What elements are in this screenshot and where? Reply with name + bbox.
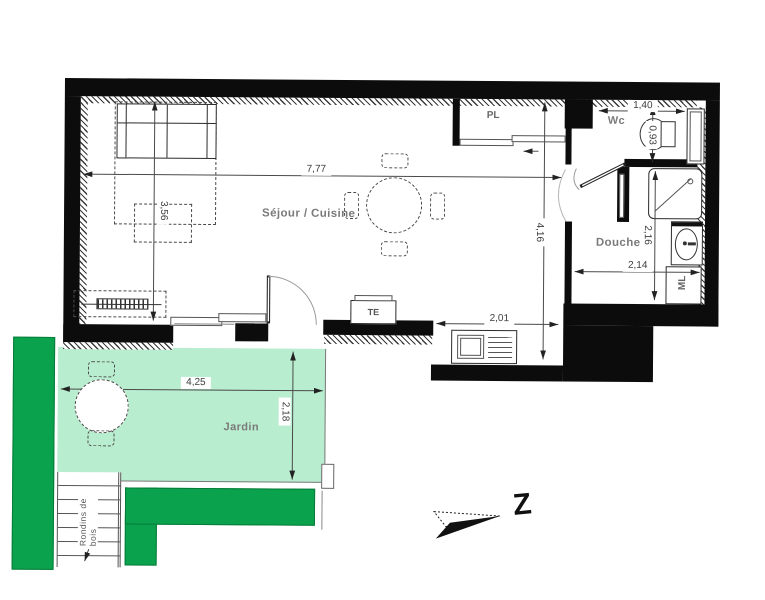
window-slider-pane-1 [170, 317, 222, 326]
dim-wc-depth: 0,93 [646, 121, 658, 149]
toilet-tank [661, 121, 676, 147]
electrical-panel-lid [354, 295, 392, 301]
wall-sejour-east-lower [564, 221, 572, 307]
electrical-panel-box: TE [350, 300, 396, 324]
faucet-bar [688, 242, 696, 245]
wood-logs-label: Rondins de bois [78, 491, 98, 549]
wall-corner-block [563, 325, 653, 382]
dim-wc-width: 1,40 [628, 100, 658, 112]
wall-door-jamb [235, 323, 268, 341]
dining-chair-north [381, 153, 408, 168]
wall-douche-south [563, 303, 718, 326]
room-label-douche: Douche [596, 237, 641, 249]
placard-slider-pane-2 [512, 135, 566, 142]
dim-sejour-width: 7,77 [301, 164, 331, 176]
garden-table [75, 379, 129, 433]
dining-chair-east [430, 193, 445, 220]
dining-chair-south [381, 241, 408, 256]
kitchen-drainboard [488, 337, 512, 359]
floorplan-canvas: Rondins de bois TE [0, 0, 765, 600]
washbasin-counter [671, 221, 703, 265]
sofa-armrest-right [206, 105, 207, 158]
dim-jardin-depth: 2,18 [279, 398, 291, 426]
wall-east [704, 100, 720, 326]
kitchen-sink-basin [460, 338, 481, 356]
hedge-left [12, 337, 56, 570]
room-label-jardin: Jardin [224, 421, 260, 433]
fence-post [321, 464, 334, 489]
room-label-sejour: Séjour / Cuisine [262, 207, 355, 220]
window-slider-pane-2 [218, 313, 266, 322]
dim-jardin-width: 4,25 [181, 377, 211, 389]
dim-plan-depth: 4,16 [533, 218, 545, 246]
dim-sejour-depth: 3,56 [157, 197, 169, 225]
wc-cabinet-inner [689, 111, 701, 161]
dining-table [366, 177, 422, 233]
dim-douche-depth: 2,16 [641, 221, 653, 249]
shower-tray [648, 168, 702, 219]
wall-pillar-duct [565, 99, 593, 128]
sofa-armrest-left [125, 104, 126, 157]
room-label-wc: Wc [608, 115, 625, 127]
placard-slider-pane-1 [460, 139, 514, 146]
dim-kitchen-width: 2,01 [484, 313, 514, 325]
room-label-placard: PL [487, 110, 500, 121]
wall-kitchen-south [431, 365, 563, 382]
shower-glass-screen [619, 174, 624, 218]
garden-chair-north [88, 361, 115, 377]
door-swing-sejour [558, 169, 566, 221]
wood-logs-path: Rondins de bois [57, 472, 122, 567]
north-arrow-label: Z [511, 487, 533, 523]
floorplan-drawing: Rondins de bois TE [0, 0, 765, 600]
sofa [116, 103, 216, 159]
garden-chair-south [87, 430, 114, 446]
hatch-south-west-wall [63, 342, 173, 350]
north-arrow-icon [434, 512, 500, 539]
washing-machine-label: ML [677, 270, 688, 296]
faucet-dot [683, 241, 687, 245]
electrical-panel-label: TE [368, 307, 380, 317]
radiator [96, 298, 148, 309]
wall-south-west-window [63, 324, 173, 343]
door-entry [268, 275, 316, 324]
dim-douche-width: 2,14 [623, 260, 653, 272]
washbasin-backsplash [672, 222, 702, 226]
hedge-bottom-horizontal [125, 487, 315, 525]
hatch-te-wall [324, 335, 432, 345]
wall-sejour-east-upper-stub [565, 128, 571, 164]
sofa-cushion-divider [166, 105, 167, 158]
